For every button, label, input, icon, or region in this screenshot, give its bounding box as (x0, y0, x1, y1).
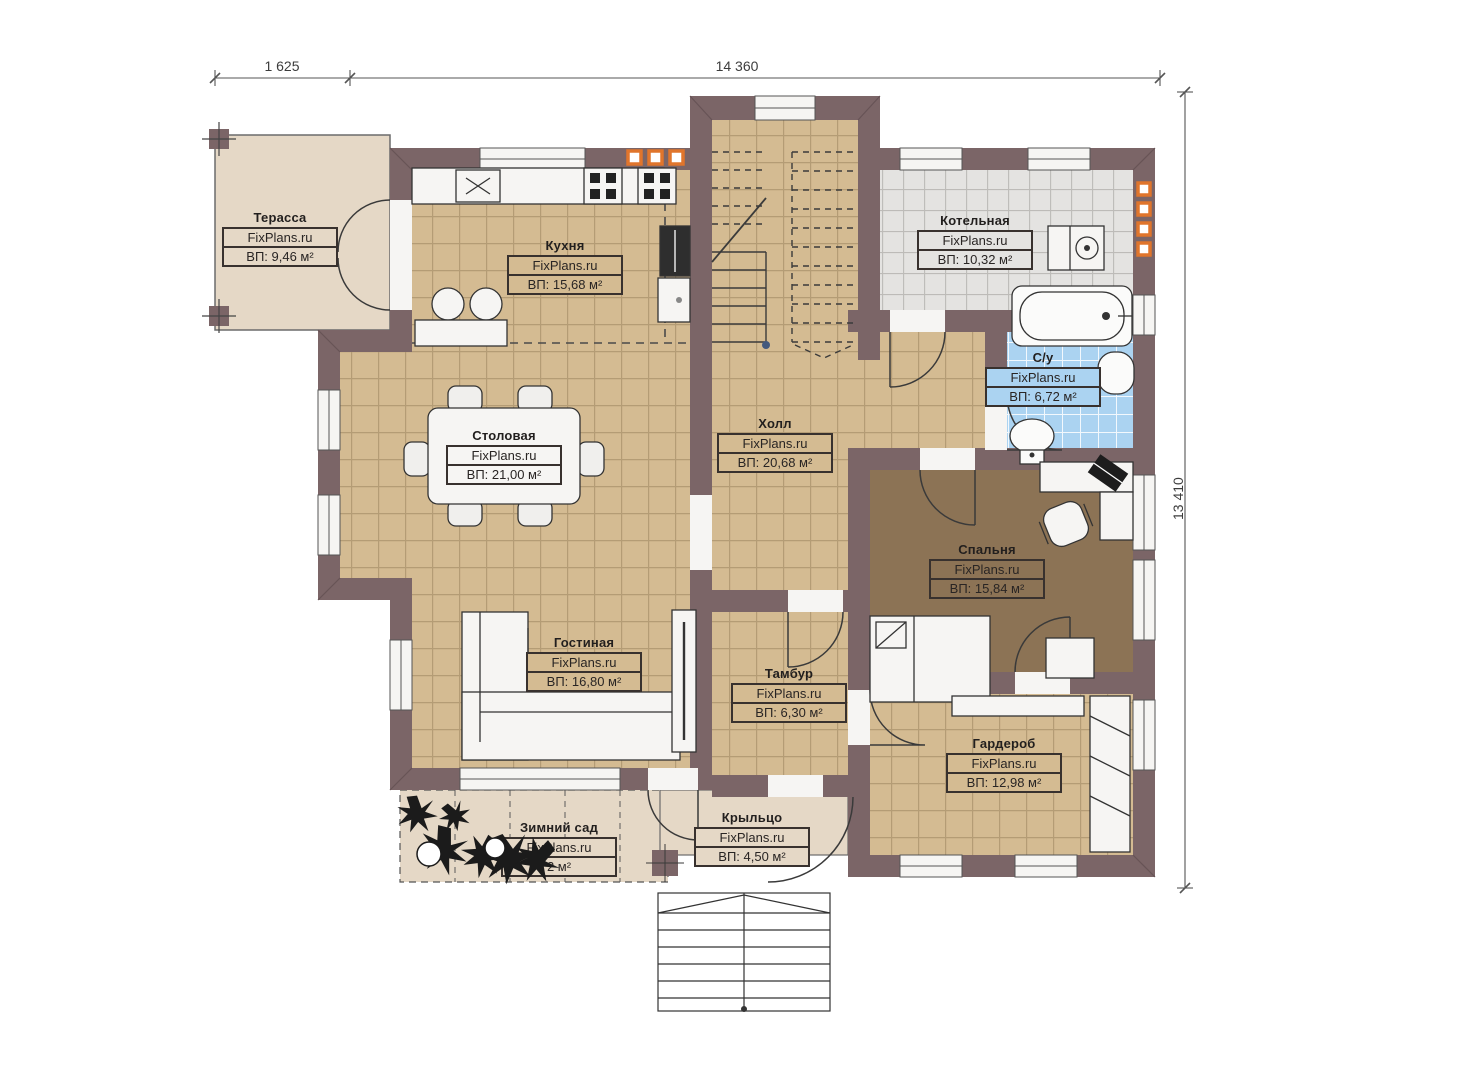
vent-icon (1138, 223, 1150, 235)
room-area: ВП: 20,68 м² (719, 454, 831, 471)
dimension-right: 13 410 (1170, 477, 1186, 520)
room-name: Тамбур (765, 666, 813, 681)
room-area: ВП: 21,00 м² (448, 466, 560, 483)
floor-plan-drawing (0, 0, 1473, 1080)
room-label-bedroom: Спальня FixPlans.ru ВП: 15,84 м² (925, 542, 1049, 599)
entrance-steps (658, 893, 830, 1012)
room-name: Гостиная (554, 635, 614, 650)
room-info-box: FixPlans.ru ВП: 10,32 м² (917, 230, 1033, 270)
vent-icon (1138, 243, 1150, 255)
vent-icon (1138, 183, 1150, 195)
window (900, 855, 962, 877)
fridge-icon (660, 226, 690, 276)
window (480, 148, 585, 170)
bathtub-icon (1012, 286, 1132, 346)
vent-icon (649, 151, 662, 164)
watermark: FixPlans.ru (696, 829, 808, 848)
room-name: Спальня (958, 542, 1016, 557)
kitchen-counter (412, 168, 664, 204)
kitchen-base-unit (658, 278, 690, 322)
room-area: ВП: 12,98 м² (948, 774, 1060, 791)
room-name: Холл (758, 416, 791, 431)
room-area: ВП: 9,46 м² (224, 248, 336, 265)
room-label-kitchen: Кухня FixPlans.ru ВП: 15,68 м² (503, 238, 627, 295)
window (1015, 855, 1077, 877)
room-label-hall: Холл FixPlans.ru ВП: 20,68 м² (713, 416, 837, 473)
watermark: FixPlans.ru (503, 839, 615, 858)
room-area: 2 м² (503, 858, 615, 875)
window (390, 640, 412, 710)
washer-icon (1048, 226, 1104, 270)
watermark: FixPlans.ru (733, 685, 845, 704)
window (1133, 475, 1155, 550)
watermark: FixPlans.ru (919, 232, 1031, 251)
watermark: FixPlans.ru (719, 435, 831, 454)
stove-icon (584, 168, 622, 204)
boiler-furniture (1048, 226, 1104, 270)
dining-chair (404, 442, 430, 476)
room-area: ВП: 4,50 м² (696, 848, 808, 865)
watermark: FixPlans.ru (528, 654, 640, 673)
window (1133, 560, 1155, 640)
room-area: ВП: 15,68 м² (509, 276, 621, 293)
window (1133, 295, 1155, 335)
window (755, 96, 815, 120)
floor-plan-canvas: 1 625 14 360 13 410 Терасса FixPlans.ru … (0, 0, 1473, 1080)
vent-icon (670, 151, 683, 164)
room-info-box: FixPlans.ru ВП: 15,84 м² (929, 559, 1045, 599)
room-name: Столовая (472, 428, 535, 443)
watermark: FixPlans.ru (931, 561, 1043, 580)
watermark: FixPlans.ru (448, 447, 560, 466)
room-name: С/у (1033, 350, 1054, 365)
room-info-box: FixPlans.ru ВП: 4,50 м² (694, 827, 810, 867)
room-area: ВП: 16,80 м² (528, 673, 640, 690)
room-name: Котельная (940, 213, 1010, 228)
dimension-top-left: 1 625 (242, 58, 322, 74)
window (460, 768, 620, 790)
room-name: Терасса (254, 210, 307, 225)
closet-shelf (952, 696, 1084, 716)
room-area: ВП: 15,84 м² (931, 580, 1043, 597)
room-label-living: Гостиная FixPlans.ru ВП: 16,80 м² (522, 635, 646, 692)
vent-icon (628, 151, 641, 164)
window (1133, 700, 1155, 770)
watermark: FixPlans.ru (509, 257, 621, 276)
room-info-box: FixPlans.ru ВП: 16,80 м² (526, 652, 642, 692)
sofa-section (462, 692, 680, 760)
kitchen-cabinet (415, 320, 507, 346)
tv-unit (672, 610, 696, 752)
room-name: Крыльцо (722, 810, 783, 825)
room-info-box: FixPlans.ru ВП: 20,68 м² (717, 433, 833, 473)
room-label-bathroom: С/у FixPlans.ru ВП: 6,72 м² (981, 350, 1105, 407)
room-label-wintergarden: Зимний сад FixPlans.ru 2 м² (497, 820, 621, 877)
room-info-box: FixPlans.ru ВП: 9,46 м² (222, 227, 338, 267)
room-label-terrace: Терасса FixPlans.ru ВП: 9,46 м² (218, 210, 342, 267)
nightstand (1046, 638, 1094, 678)
room-label-wardrobe: Гардероб FixPlans.ru ВП: 12,98 м² (942, 736, 1066, 793)
window (318, 495, 340, 555)
room-label-porch: Крыльцо FixPlans.ru ВП: 4,50 м² (690, 810, 814, 867)
room-area: ВП: 10,32 м² (919, 251, 1031, 268)
room-info-box: FixPlans.ru ВП: 21,00 м² (446, 445, 562, 485)
stair-direction-marker (762, 341, 770, 349)
oven-icon (638, 168, 676, 204)
room-info-box: FixPlans.ru 2 м² (501, 837, 617, 877)
stool (470, 288, 502, 320)
watermark: FixPlans.ru (948, 755, 1060, 774)
closet-unit (1090, 696, 1130, 852)
room-info-box: FixPlans.ru ВП: 6,72 м² (985, 367, 1101, 407)
dining-bay-floor (340, 352, 412, 578)
vent-icon (1138, 203, 1150, 215)
room-info-box: FixPlans.ru ВП: 6,30 м² (731, 683, 847, 723)
room-name: Кухня (546, 238, 585, 253)
window (900, 148, 962, 170)
room-label-dining: Столовая FixPlans.ru ВП: 21,00 м² (442, 428, 566, 485)
dining-chair (578, 442, 604, 476)
window (318, 390, 340, 450)
room-info-box: FixPlans.ru ВП: 15,68 м² (507, 255, 623, 295)
room-label-vestibule: Тамбур FixPlans.ru ВП: 6,30 м² (727, 666, 851, 723)
watermark: FixPlans.ru (224, 229, 336, 248)
stairwell-floor (712, 120, 858, 172)
room-name: Зимний сад (520, 820, 598, 835)
dimension-top-main: 14 360 (697, 58, 777, 74)
bed (870, 616, 990, 702)
room-name: Гардероб (972, 736, 1035, 751)
room-area: ВП: 6,72 м² (987, 388, 1099, 405)
watermark: FixPlans.ru (987, 369, 1099, 388)
room-label-boiler: Котельная FixPlans.ru ВП: 10,32 м² (913, 213, 1037, 270)
stool (432, 288, 464, 320)
room-area: ВП: 6,30 м² (733, 704, 845, 721)
room-info-box: FixPlans.ru ВП: 12,98 м² (946, 753, 1062, 793)
window (1028, 148, 1090, 170)
kitchen-sink-icon (456, 170, 500, 202)
